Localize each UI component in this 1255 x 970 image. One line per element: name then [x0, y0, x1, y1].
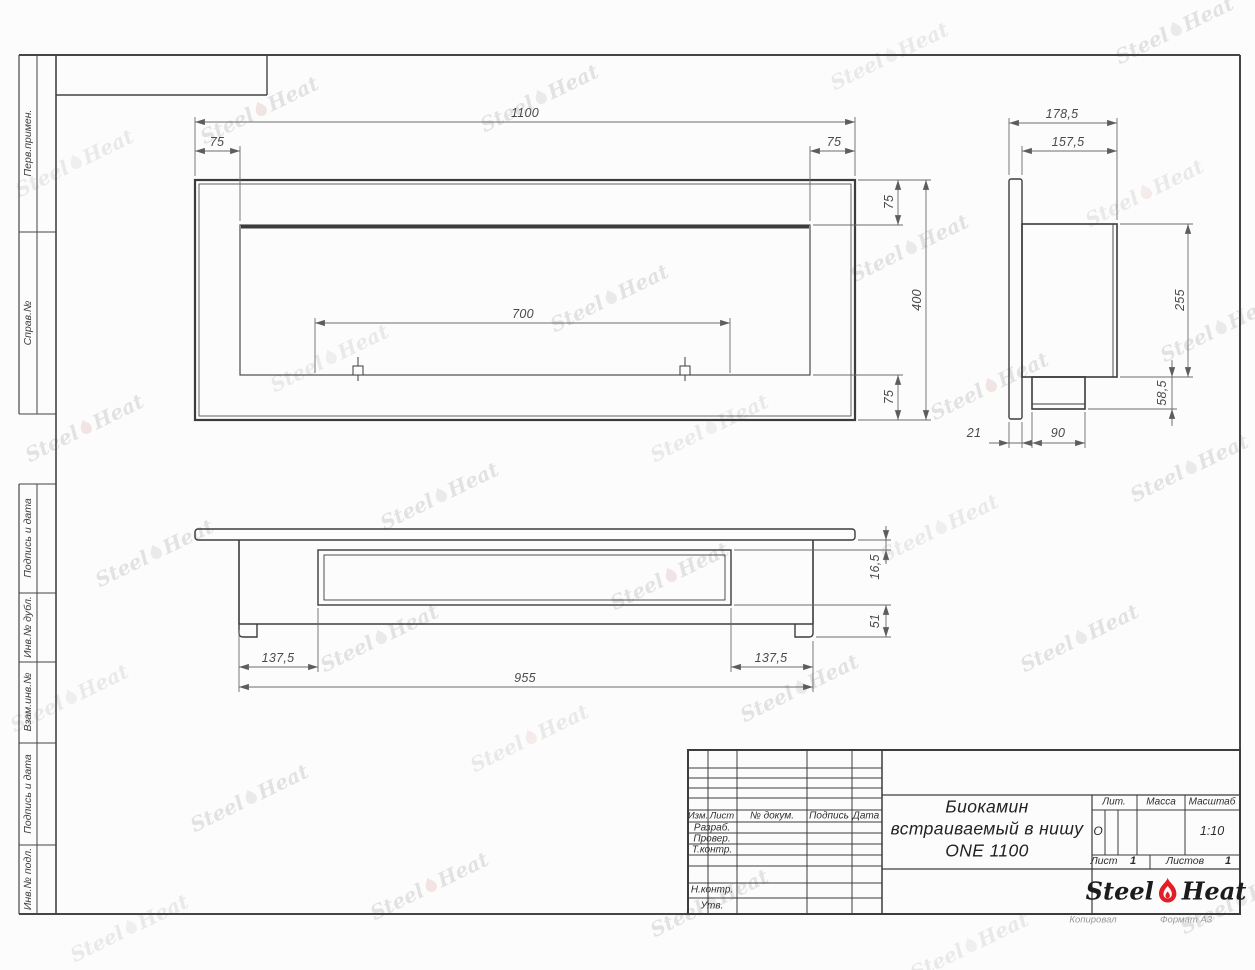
- dim-side-depth-body: 157,5: [1052, 135, 1085, 149]
- dim-side-flange-thickness: 21: [967, 426, 982, 440]
- titleblock-row-checked: Провер.: [693, 834, 730, 845]
- brand-heat-text: Heat: [1182, 877, 1247, 906]
- dim-side-depth-total: 178,5: [1046, 107, 1079, 121]
- dim-front-total-width: 1100: [511, 106, 539, 120]
- titleblock-lit-value: О: [1093, 824, 1102, 838]
- titleblock-col-podpis: Подпись: [809, 811, 849, 822]
- titleblock-sheets-value: 1: [1225, 855, 1231, 867]
- titleblock-scale-value: 1:10: [1200, 824, 1224, 838]
- drawing-sheet: SteelHeatSteelHeatSteelHeatSteelHeatStee…: [0, 0, 1255, 970]
- dim-bottom-body-width: 955: [514, 671, 536, 685]
- footer-format: Формат A3: [1160, 915, 1212, 926]
- titleblock-sheet-label: Лист: [1090, 855, 1117, 867]
- doc-title-line2: встраиваемый в нишу: [891, 819, 1084, 840]
- titleblock-mass-label: Масса: [1146, 797, 1176, 808]
- titleblock-row-developed: Разраб.: [694, 823, 730, 834]
- doc-title-line3: ONE 1100: [945, 841, 1029, 862]
- titleblock-col-list: Лист: [710, 811, 734, 822]
- sidebar-label-podpis-data-1: Подпись и дата: [22, 498, 34, 577]
- side-view-outline: [1009, 179, 1117, 419]
- titleblock-row-tcontrol: Т.контр.: [692, 845, 732, 856]
- sidebar-label-perv-primen: Перв.примен.: [22, 110, 34, 177]
- sidebar-label-inv-dubl: Инв.№ дубл.: [22, 596, 34, 658]
- titleblock-lit-label: Лит.: [1102, 797, 1125, 808]
- dim-bottom-inset-right: 137,5: [755, 651, 788, 665]
- titleblock-col-docnum: № докум.: [750, 811, 794, 822]
- dim-bottom-foot: 51: [868, 614, 882, 629]
- titleblock-sheet-value: 1: [1130, 855, 1136, 867]
- front-view-outline: [195, 180, 855, 420]
- dim-bottom-lip: 16,5: [868, 554, 882, 580]
- titleblock-col-data: Дата: [853, 811, 879, 822]
- dim-side-bottom-height: 58,5: [1155, 380, 1169, 406]
- footer-copied: Копировал: [1069, 915, 1116, 926]
- bottom-view-outline: [195, 529, 855, 637]
- dim-side-body-height: 255: [1173, 289, 1187, 311]
- doc-title-line1: Биокамин: [945, 797, 1028, 818]
- dim-front-opening-width: 700: [512, 307, 534, 321]
- sidebar-label-sprav-no: Справ.№: [22, 301, 34, 346]
- dim-bottom-inset-left: 137,5: [262, 651, 295, 665]
- dim-side-bottom-depth: 90: [1051, 426, 1066, 440]
- sidebar-label-podpis-data-2: Подпись и дата: [22, 754, 34, 833]
- brand-steel-text: Steel: [1086, 877, 1154, 906]
- dim-front-total-height: 400: [910, 289, 924, 311]
- dim-front-margin-bottom: 75: [882, 390, 896, 405]
- titleblock-col-izm: Изм.: [688, 811, 708, 822]
- flame-icon: [1157, 877, 1179, 905]
- sidebar-label-inv-podl: Инв.№ подл.: [22, 848, 34, 910]
- bottom-view-dims: [239, 526, 891, 692]
- dim-front-margin-top: 75: [882, 195, 896, 210]
- dim-front-margin-left: 75: [210, 135, 225, 149]
- titleblock-sheets-label: Листов: [1166, 855, 1204, 867]
- titleblock-row-ncontrol: Н.контр.: [691, 885, 733, 896]
- brand-logo: Steel Heat: [1086, 877, 1247, 906]
- dim-front-margin-right: 75: [827, 135, 842, 149]
- titleblock-scale-label: Масштаб: [1189, 797, 1236, 808]
- titleblock-row-approved: Утв.: [701, 901, 724, 912]
- sidebar-label-vzam-inv: Взам.инв.№: [22, 672, 34, 731]
